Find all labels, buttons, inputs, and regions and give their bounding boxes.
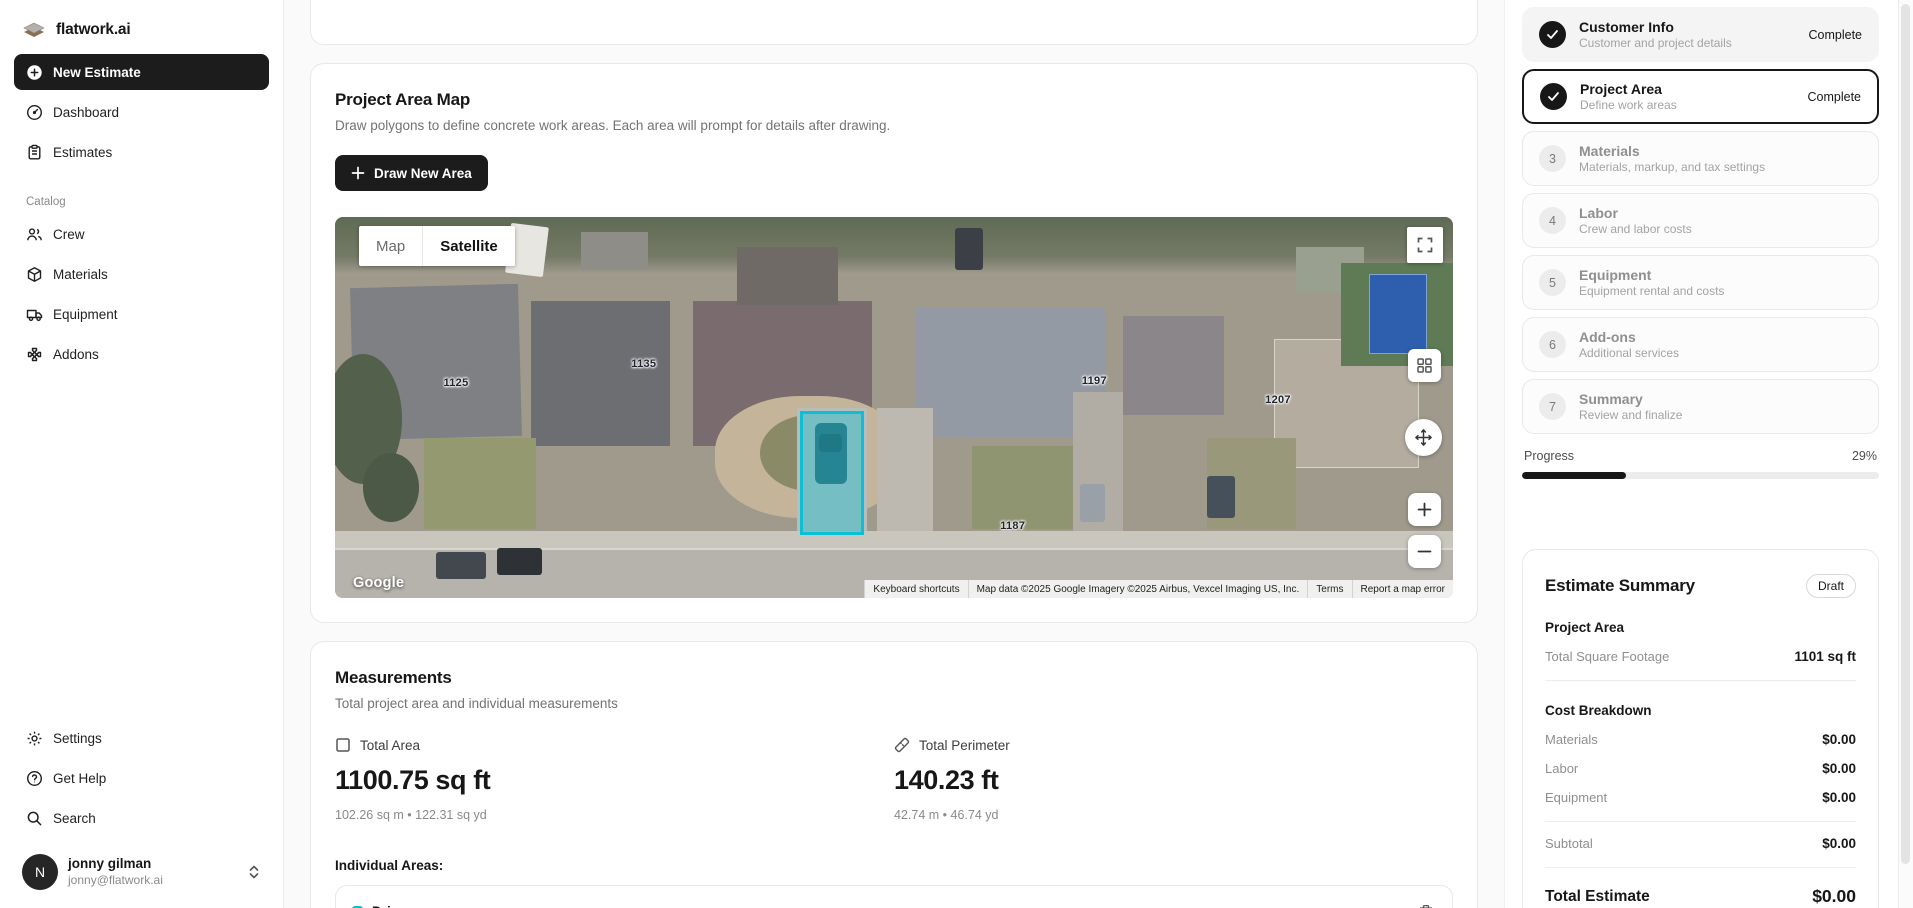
- step-number: 7: [1539, 393, 1566, 420]
- sidebar-footer: Settings Get Help Search N jonny gilman …: [14, 720, 269, 892]
- gauge-icon: [26, 104, 43, 121]
- area-name: Driveway: [372, 904, 431, 908]
- app-title: flatwork.ai: [56, 21, 130, 39]
- terms-link[interactable]: Terms: [1307, 580, 1351, 598]
- user-menu[interactable]: N jonny gilman jonny@flatwork.ai: [14, 844, 269, 892]
- map-parcel-label: 1207: [1265, 394, 1291, 406]
- sidebar-item-settings[interactable]: Settings: [14, 720, 269, 756]
- project-area-section-label: Project Area: [1545, 620, 1856, 635]
- step-status: Complete: [1808, 90, 1862, 104]
- total-perimeter-alt-units: 42.74 m • 46.74 yd: [894, 808, 1453, 822]
- delete-area-button[interactable]: [1418, 904, 1436, 908]
- report-map-error-link[interactable]: Report a map error: [1352, 580, 1453, 598]
- cost-row-label: Equipment: [1545, 790, 1607, 805]
- sidebar-item-label: Materials: [53, 267, 108, 282]
- step-project-area[interactable]: Project Area Define work areas Complete: [1522, 69, 1879, 124]
- puzzle-icon: [26, 346, 43, 363]
- step-materials[interactable]: 3 Materials Materials, markup, and tax s…: [1522, 131, 1879, 186]
- divider: [1545, 821, 1856, 822]
- sidebar-item-label: Get Help: [53, 771, 106, 786]
- trash-icon: [1418, 904, 1434, 908]
- map-data-text: Map data ©2025 Google Imagery ©2025 Airb…: [968, 580, 1308, 598]
- divider: [1545, 867, 1856, 868]
- sidebar-item-label: New Estimate: [53, 65, 141, 80]
- map-type-control: Map Satellite: [359, 226, 515, 266]
- measurements-title: Measurements: [335, 668, 1453, 688]
- sidebar-item-equipment[interactable]: Equipment: [14, 296, 269, 332]
- sidebar-item-label: Equipment: [53, 307, 118, 322]
- estimate-summary-card: Estimate Summary Draft Project Area Tota…: [1522, 549, 1879, 908]
- search-icon: [26, 810, 43, 827]
- map-attribution: Keyboard shortcuts Map data ©2025 Google…: [864, 580, 1453, 598]
- sidebar-item-addons[interactable]: Addons: [14, 336, 269, 372]
- total-perimeter-label: Total Perimeter: [919, 738, 1010, 753]
- map-parcel-label: 1135: [631, 358, 656, 370]
- step-summary[interactable]: 7 Summary Review and finalize: [1522, 379, 1879, 434]
- avatar: N: [22, 854, 58, 890]
- subtotal-label: Subtotal: [1545, 836, 1593, 851]
- map-parcel-label: 1187: [1000, 520, 1025, 532]
- cost-row-label: Labor: [1545, 761, 1578, 776]
- main-content: Project Area Map Draw polygons to define…: [284, 0, 1504, 908]
- progress-bar-fill: [1522, 472, 1626, 479]
- check-icon: [1547, 90, 1560, 103]
- step-title: Summary: [1579, 390, 1862, 408]
- sidebar: flatwork.ai New Estimate Dashboard Estim…: [0, 0, 284, 908]
- cost-row-value: $0.00: [1822, 761, 1856, 776]
- move-arrows-icon: [1414, 428, 1433, 447]
- sidebar-item-label: Settings: [53, 731, 102, 746]
- user-name: jonny gilman: [68, 856, 237, 873]
- progress-bar: [1522, 472, 1879, 479]
- app-window: flatwork.ai New Estimate Dashboard Estim…: [0, 0, 1913, 908]
- total-area-label: Total Area: [360, 738, 420, 753]
- keyboard-shortcuts-link[interactable]: Keyboard shortcuts: [864, 580, 967, 598]
- wizard-panel: Customer Info Customer and project detai…: [1504, 0, 1913, 908]
- users-icon: [26, 226, 43, 243]
- cost-row-label: Materials: [1545, 732, 1598, 747]
- sidebar-item-search[interactable]: Search: [14, 800, 269, 836]
- sidebar-item-label: Addons: [53, 347, 99, 362]
- total-perimeter-value: 140.23 ft: [894, 765, 1453, 796]
- step-title: Customer Info: [1579, 18, 1796, 36]
- driveway-polygon[interactable]: [800, 411, 864, 535]
- sidebar-item-dashboard[interactable]: Dashboard: [14, 94, 269, 130]
- chevron-up-down-icon: [247, 864, 261, 880]
- total-estimate-label: Total Estimate: [1545, 888, 1650, 906]
- draft-status-badge: Draft: [1806, 574, 1856, 598]
- sidebar-item-label: Crew: [53, 227, 85, 242]
- step-subtitle: Materials, markup, and tax settings: [1579, 160, 1862, 176]
- step-title: Equipment: [1579, 266, 1862, 284]
- satellite-imagery: [335, 217, 1453, 598]
- step-check: [1539, 21, 1566, 48]
- grid-icon: [1417, 358, 1432, 373]
- plus-icon: [1417, 502, 1432, 517]
- step-number: 6: [1539, 331, 1566, 358]
- map-parcel-label: 1197: [1082, 375, 1107, 387]
- cost-breakdown-label: Cost Breakdown: [1545, 703, 1856, 718]
- draw-new-area-button[interactable]: Draw New Area: [335, 155, 488, 191]
- tiles-grid-button[interactable]: [1408, 349, 1441, 382]
- cost-row-value: $0.00: [1822, 732, 1856, 747]
- plus-circle-icon: [26, 64, 43, 81]
- pan-control-button[interactable]: [1405, 419, 1442, 456]
- step-equipment[interactable]: 5 Equipment Equipment rental and costs: [1522, 255, 1879, 310]
- divider: [1545, 680, 1856, 681]
- step-subtitle: Review and finalize: [1579, 408, 1862, 424]
- sidebar-item-label: Search: [53, 811, 96, 826]
- step-add-ons[interactable]: 6 Add-ons Additional services: [1522, 317, 1879, 372]
- step-subtitle: Crew and labor costs: [1579, 222, 1862, 238]
- individual-areas-label: Individual Areas:: [335, 858, 1453, 873]
- sidebar-item-label: Dashboard: [53, 105, 119, 120]
- step-number: 3: [1539, 145, 1566, 172]
- minus-icon: [1417, 544, 1432, 559]
- gear-icon: [26, 730, 43, 747]
- measurements-card: Measurements Total project area and indi…: [310, 641, 1478, 908]
- step-labor[interactable]: 4 Labor Crew and labor costs: [1522, 193, 1879, 248]
- step-title: Add-ons: [1579, 328, 1862, 346]
- square-icon: [335, 737, 351, 753]
- progress-row: Progress 29%: [1522, 449, 1879, 463]
- step-title: Materials: [1579, 142, 1862, 160]
- box-icon: [26, 266, 43, 283]
- total-area-alt-units: 102.26 sq m • 122.31 sq yd: [335, 808, 894, 822]
- sidebar-item-get-help[interactable]: Get Help: [14, 760, 269, 796]
- scrollbar-thumb[interactable]: [1901, 4, 1910, 864]
- sqft-label: Total Square Footage: [1545, 649, 1669, 664]
- zoom-out-button[interactable]: [1408, 535, 1441, 568]
- step-number: 5: [1539, 269, 1566, 296]
- total-estimate-value: $0.00: [1812, 886, 1856, 907]
- total-perimeter-metric: Total Perimeter 140.23 ft 42.74 m • 46.7…: [894, 737, 1453, 822]
- map-parcel-label: 1125: [443, 377, 468, 389]
- subtotal-value: $0.00: [1822, 836, 1856, 851]
- plus-icon: [351, 166, 365, 180]
- help-circle-icon: [26, 770, 43, 787]
- map-card-title: Project Area Map: [335, 90, 1453, 110]
- estimate-summary-title: Estimate Summary: [1545, 576, 1695, 596]
- step-subtitle: Define work areas: [1580, 98, 1795, 114]
- catalog-section-label: Catalog: [14, 174, 269, 216]
- step-number: 4: [1539, 207, 1566, 234]
- map-type-map-button[interactable]: Map: [359, 226, 422, 266]
- user-email: jonny@flatwork.ai: [68, 873, 237, 888]
- step-subtitle: Additional services: [1579, 346, 1862, 362]
- measurements-subtitle: Total project area and individual measur…: [335, 696, 1453, 711]
- total-area-metric: Total Area 1100.75 sq ft 102.26 sq m • 1…: [335, 737, 894, 822]
- map-card-subtitle: Draw polygons to define concrete work ar…: [335, 118, 1453, 133]
- layers-logo-icon: [22, 20, 46, 40]
- app-logo: flatwork.ai: [14, 12, 269, 54]
- sidebar-item-label: Estimates: [53, 145, 112, 160]
- zoom-in-button[interactable]: [1408, 493, 1441, 526]
- fullscreen-button[interactable]: [1407, 227, 1443, 263]
- sidebar-item-estimates[interactable]: Estimates: [14, 134, 269, 170]
- total-area-value: 1100.75 sq ft: [335, 765, 894, 796]
- clipboard-icon: [26, 144, 43, 161]
- progress-percent: 29%: [1852, 449, 1877, 463]
- project-area-map-card: Project Area Map Draw polygons to define…: [310, 63, 1478, 623]
- sidebar-item-new-estimate[interactable]: New Estimate: [14, 54, 269, 90]
- fullscreen-icon: [1417, 237, 1433, 253]
- sidebar-item-materials[interactable]: Materials: [14, 256, 269, 292]
- map-type-satellite-button[interactable]: Satellite: [422, 226, 515, 266]
- sqft-value: 1101 sq ft: [1794, 649, 1856, 664]
- progress-label: Progress: [1524, 449, 1574, 463]
- sidebar-item-crew[interactable]: Crew: [14, 216, 269, 252]
- check-icon: [1546, 28, 1559, 41]
- step-title: Project Area: [1580, 80, 1795, 98]
- step-title: Labor: [1579, 204, 1862, 222]
- step-check: [1540, 83, 1567, 110]
- step-customer-info[interactable]: Customer Info Customer and project detai…: [1522, 7, 1879, 62]
- cost-row-value: $0.00: [1822, 790, 1856, 805]
- step-subtitle: Equipment rental and costs: [1579, 284, 1862, 300]
- map-viewport[interactable]: 1125 1135 1197 1207 1187 Map Satellite: [335, 217, 1453, 598]
- step-subtitle: Customer and project details: [1579, 36, 1796, 52]
- google-logo: Google: [353, 575, 404, 591]
- truck-icon: [26, 306, 43, 323]
- previous-section-card: [310, 0, 1478, 45]
- ruler-icon: [894, 737, 910, 753]
- step-status: Complete: [1809, 28, 1863, 42]
- area-list-item-driveway[interactable]: Driveway: [335, 885, 1453, 908]
- page-scrollbar[interactable]: [1898, 0, 1913, 908]
